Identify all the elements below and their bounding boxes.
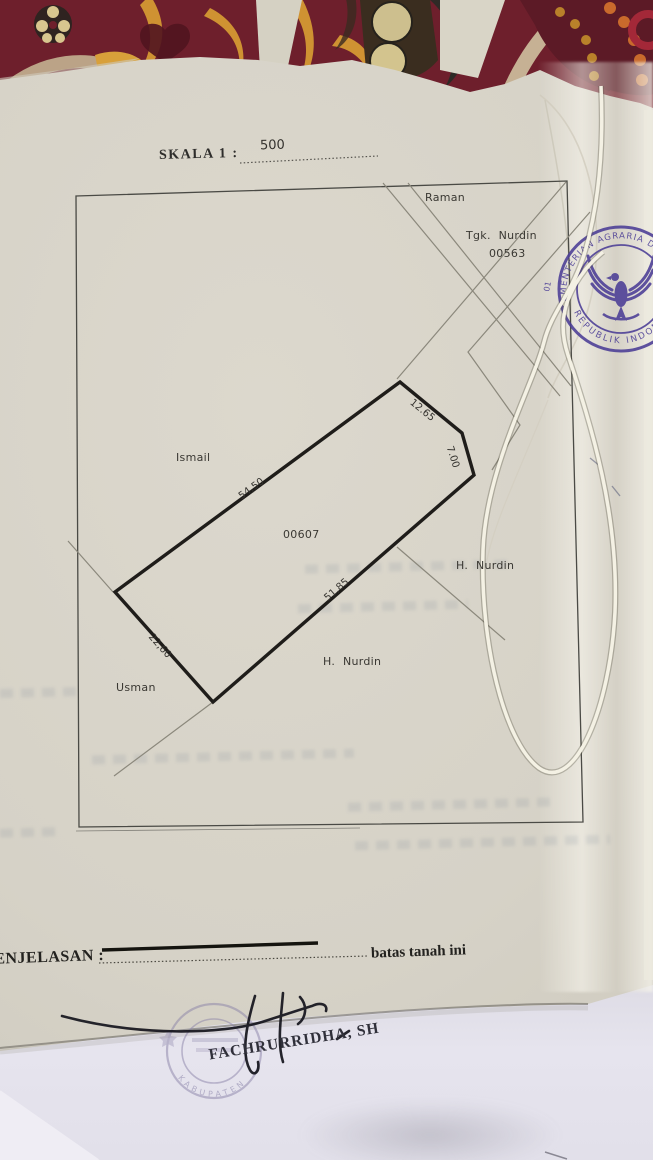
scale-dotted-line [240,156,378,163]
legend-note: batas tanah ini [371,942,467,962]
ministry-stamp-code: 01 [542,281,553,293]
ministry-stamp: KEMENTERIAN AGRARIA DAN TATA RUANG REPUB… [0,0,653,351]
label-usman: Usman [116,681,156,694]
pen-mark [545,1152,567,1159]
garuda-eagle-icon [588,256,653,321]
map-frame [76,181,583,827]
binding-thread [483,86,616,772]
photo-of-land-survey-document: KEMENTERIAN AGRARIA DAN TATA RUANG REPUB… [0,0,653,1160]
label-parcel-00607: 00607 [283,528,320,541]
legend-dotted-line [99,956,368,963]
legend-boundary-symbol-line [102,943,318,950]
map-frame-double-line [76,828,360,831]
scale-label: SKALA 1 : [159,146,239,164]
label-raman: Raman [425,191,465,204]
notary-stamp-text: KABUPATEN [176,1073,248,1098]
label-tgk-nurdin: Tgk. Nurdin [466,229,537,242]
label-h-nurdin-east: H. Nurdin [456,559,514,572]
label-ismail: Ismail [176,451,210,464]
scale-value: 500 [260,138,285,154]
map-drawing-overlay: KEMENTERIAN AGRARIA DAN TATA RUANG REPUB… [0,0,653,1160]
svg-text:REPUBLIK INDONESIA: REPUBLIK INDONESIA [0,0,653,346]
ministry-stamp-bottom-text: REPUBLIK INDONESIA [0,0,653,346]
label-parcel-00563: 00563 [489,247,526,260]
label-h-nurdin-south: H. Nurdin [323,655,381,668]
svg-text:KABUPATEN: KABUPATEN [176,1073,248,1098]
